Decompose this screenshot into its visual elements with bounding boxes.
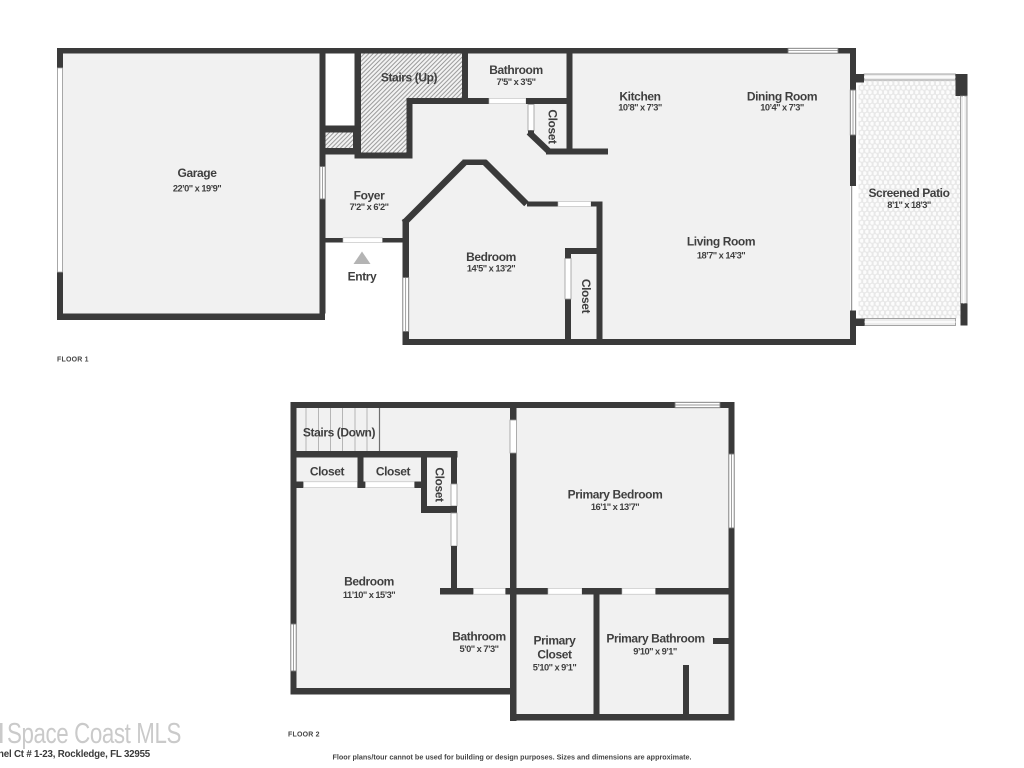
svg-text:Bedroom: Bedroom: [466, 250, 516, 264]
svg-text:18’7" x 14’3": 18’7" x 14’3": [697, 251, 745, 261]
svg-text:Primary Bathroom: Primary Bathroom: [606, 631, 704, 645]
svg-text:nel Ct # 1-23, Rockledge, FL 3: nel Ct # 1-23, Rockledge, FL 32955: [0, 749, 151, 760]
svg-text:Bathroom: Bathroom: [489, 63, 542, 77]
svg-text:Living Room: Living Room: [687, 235, 755, 249]
svg-text:Closet: Closet: [579, 279, 593, 314]
svg-text:Kitchen: Kitchen: [619, 89, 660, 103]
svg-text:Stairs (Up): Stairs (Up): [381, 71, 438, 85]
svg-text:8’1" x 18’3": 8’1" x 18’3": [887, 200, 931, 210]
svg-text:Bedroom: Bedroom: [344, 575, 394, 589]
svg-text:9’10" x 9’1": 9’10" x 9’1": [633, 646, 677, 656]
svg-text:Dining Room: Dining Room: [747, 89, 817, 103]
svg-text:Space Coast MLS: Space Coast MLS: [7, 718, 181, 750]
svg-text:Stairs (Down): Stairs (Down): [303, 425, 376, 439]
svg-text:FLOOR 2: FLOOR 2: [288, 732, 320, 739]
svg-text:Closet: Closet: [537, 647, 572, 661]
svg-text:Bathroom: Bathroom: [452, 630, 505, 644]
svg-text:5’10" x 9’1": 5’10" x 9’1": [533, 662, 577, 672]
svg-text:10’4" x 7’3": 10’4" x 7’3": [760, 102, 804, 112]
svg-text:7’2" x 6’2": 7’2" x 6’2": [350, 202, 389, 212]
svg-text:5’0" x 7’3": 5’0" x 7’3": [460, 644, 499, 654]
svg-text:16’1" x 13’7": 16’1" x 13’7": [591, 502, 639, 512]
svg-text:Primary: Primary: [534, 633, 577, 647]
svg-text:14’5" x 13’2": 14’5" x 13’2": [467, 263, 515, 273]
svg-text:Closet: Closet: [376, 464, 411, 478]
svg-text:Closet: Closet: [433, 467, 447, 502]
svg-text:FLOOR 1: FLOOR 1: [57, 357, 89, 364]
svg-text:Primary Bedroom: Primary Bedroom: [568, 487, 663, 501]
svg-text:Floor plans/tour cannot be use: Floor plans/tour cannot be used for buil…: [333, 753, 692, 762]
svg-text:Garage: Garage: [178, 166, 218, 180]
svg-text:Screened Patio: Screened Patio: [868, 186, 949, 200]
svg-text:22’0" x 19’9": 22’0" x 19’9": [173, 184, 221, 194]
svg-text:7’5" x 3’5": 7’5" x 3’5": [497, 77, 536, 87]
svg-text:11’10" x 15’3": 11’10" x 15’3": [343, 590, 395, 600]
svg-text:Closet: Closet: [546, 109, 560, 144]
svg-text:Entry: Entry: [348, 270, 377, 284]
svg-text:Foyer: Foyer: [354, 189, 385, 203]
svg-text:10’8" x 7’3": 10’8" x 7’3": [618, 102, 662, 112]
svg-text:Closet: Closet: [310, 464, 345, 478]
